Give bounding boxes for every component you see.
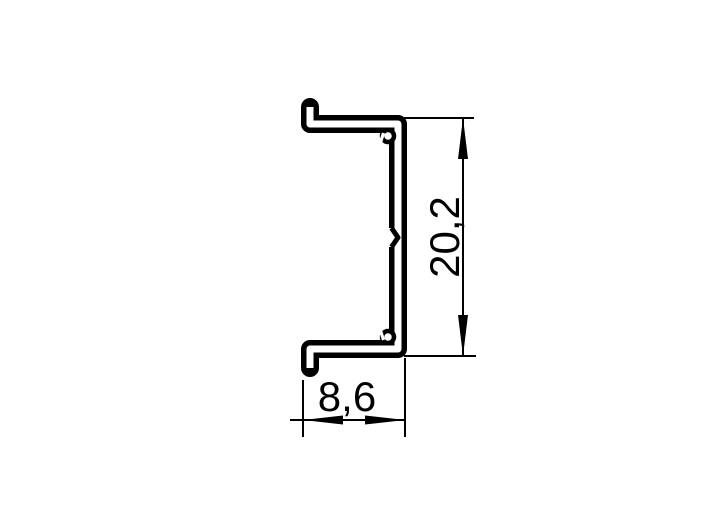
drawing-canvas: 20,2 8,6	[0, 0, 708, 531]
height-dimension: 20,2	[404, 118, 476, 356]
arrow-down-icon	[458, 315, 468, 356]
profile-drawing: 20,2 8,6	[0, 0, 708, 531]
height-dimension-label: 20,2	[421, 196, 468, 278]
arrow-up-icon	[458, 118, 468, 159]
top-bead-slot	[379, 133, 384, 147]
profile-wall-outline	[310, 107, 398, 368]
profile-outline	[310, 107, 398, 368]
bottom-bead-slot	[379, 326, 384, 340]
profile-wall-core	[310, 107, 398, 368]
width-dimension-label: 8,6	[318, 373, 376, 420]
